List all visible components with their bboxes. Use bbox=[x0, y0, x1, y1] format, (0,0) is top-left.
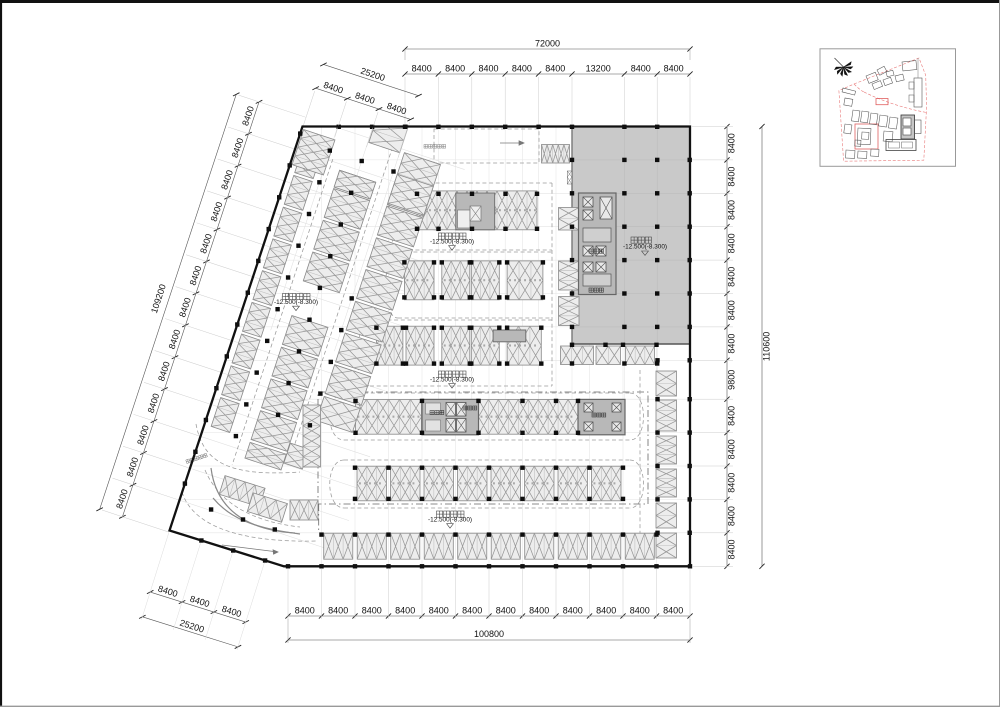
svg-text:8400: 8400 bbox=[727, 473, 737, 493]
svg-text:8400: 8400 bbox=[631, 64, 651, 74]
svg-text:8400: 8400 bbox=[462, 606, 482, 616]
svg-text:8400: 8400 bbox=[412, 64, 432, 74]
svg-text:-12.500(-8.300): -12.500(-8.300) bbox=[274, 299, 318, 306]
svg-text:-12.500(-8.300): -12.500(-8.300) bbox=[623, 244, 667, 251]
svg-text:8400: 8400 bbox=[727, 334, 737, 354]
svg-text:8400: 8400 bbox=[328, 606, 348, 616]
svg-text:8400: 8400 bbox=[563, 606, 583, 616]
svg-text:8400: 8400 bbox=[727, 200, 737, 220]
svg-text:-12.500(-8.300): -12.500(-8.300) bbox=[430, 377, 474, 384]
svg-text:8400: 8400 bbox=[362, 606, 382, 616]
svg-text:110600: 110600 bbox=[762, 332, 772, 361]
svg-text:8400: 8400 bbox=[727, 539, 737, 559]
svg-text:8400: 8400 bbox=[727, 267, 737, 287]
svg-text:-12.500(-8.300): -12.500(-8.300) bbox=[428, 517, 472, 524]
svg-text:8400: 8400 bbox=[727, 406, 737, 426]
svg-text:8400: 8400 bbox=[478, 64, 498, 74]
svg-text:8400: 8400 bbox=[664, 64, 684, 74]
svg-text:8400: 8400 bbox=[727, 133, 737, 153]
svg-text:8400: 8400 bbox=[429, 606, 449, 616]
svg-text:8400: 8400 bbox=[727, 506, 737, 526]
svg-text:8400: 8400 bbox=[512, 64, 532, 74]
svg-text:72000: 72000 bbox=[535, 39, 560, 49]
svg-text:8400: 8400 bbox=[630, 606, 650, 616]
svg-text:8400: 8400 bbox=[295, 606, 315, 616]
svg-text:8400: 8400 bbox=[445, 64, 465, 74]
svg-text:8400: 8400 bbox=[727, 439, 737, 459]
svg-text:9800: 9800 bbox=[727, 370, 737, 390]
svg-text:8400: 8400 bbox=[596, 606, 616, 616]
svg-text:8400: 8400 bbox=[727, 300, 737, 320]
svg-text:8400: 8400 bbox=[395, 606, 415, 616]
svg-text:8400: 8400 bbox=[496, 606, 516, 616]
svg-text:-12.500(-8.300): -12.500(-8.300) bbox=[430, 239, 474, 246]
svg-text:8400: 8400 bbox=[545, 64, 565, 74]
svg-text:8400: 8400 bbox=[529, 606, 549, 616]
svg-text:8400: 8400 bbox=[727, 233, 737, 253]
svg-text:13200: 13200 bbox=[586, 64, 611, 74]
svg-text:8400: 8400 bbox=[663, 606, 683, 616]
svg-text:8400: 8400 bbox=[727, 167, 737, 187]
svg-text:100800: 100800 bbox=[474, 629, 504, 639]
